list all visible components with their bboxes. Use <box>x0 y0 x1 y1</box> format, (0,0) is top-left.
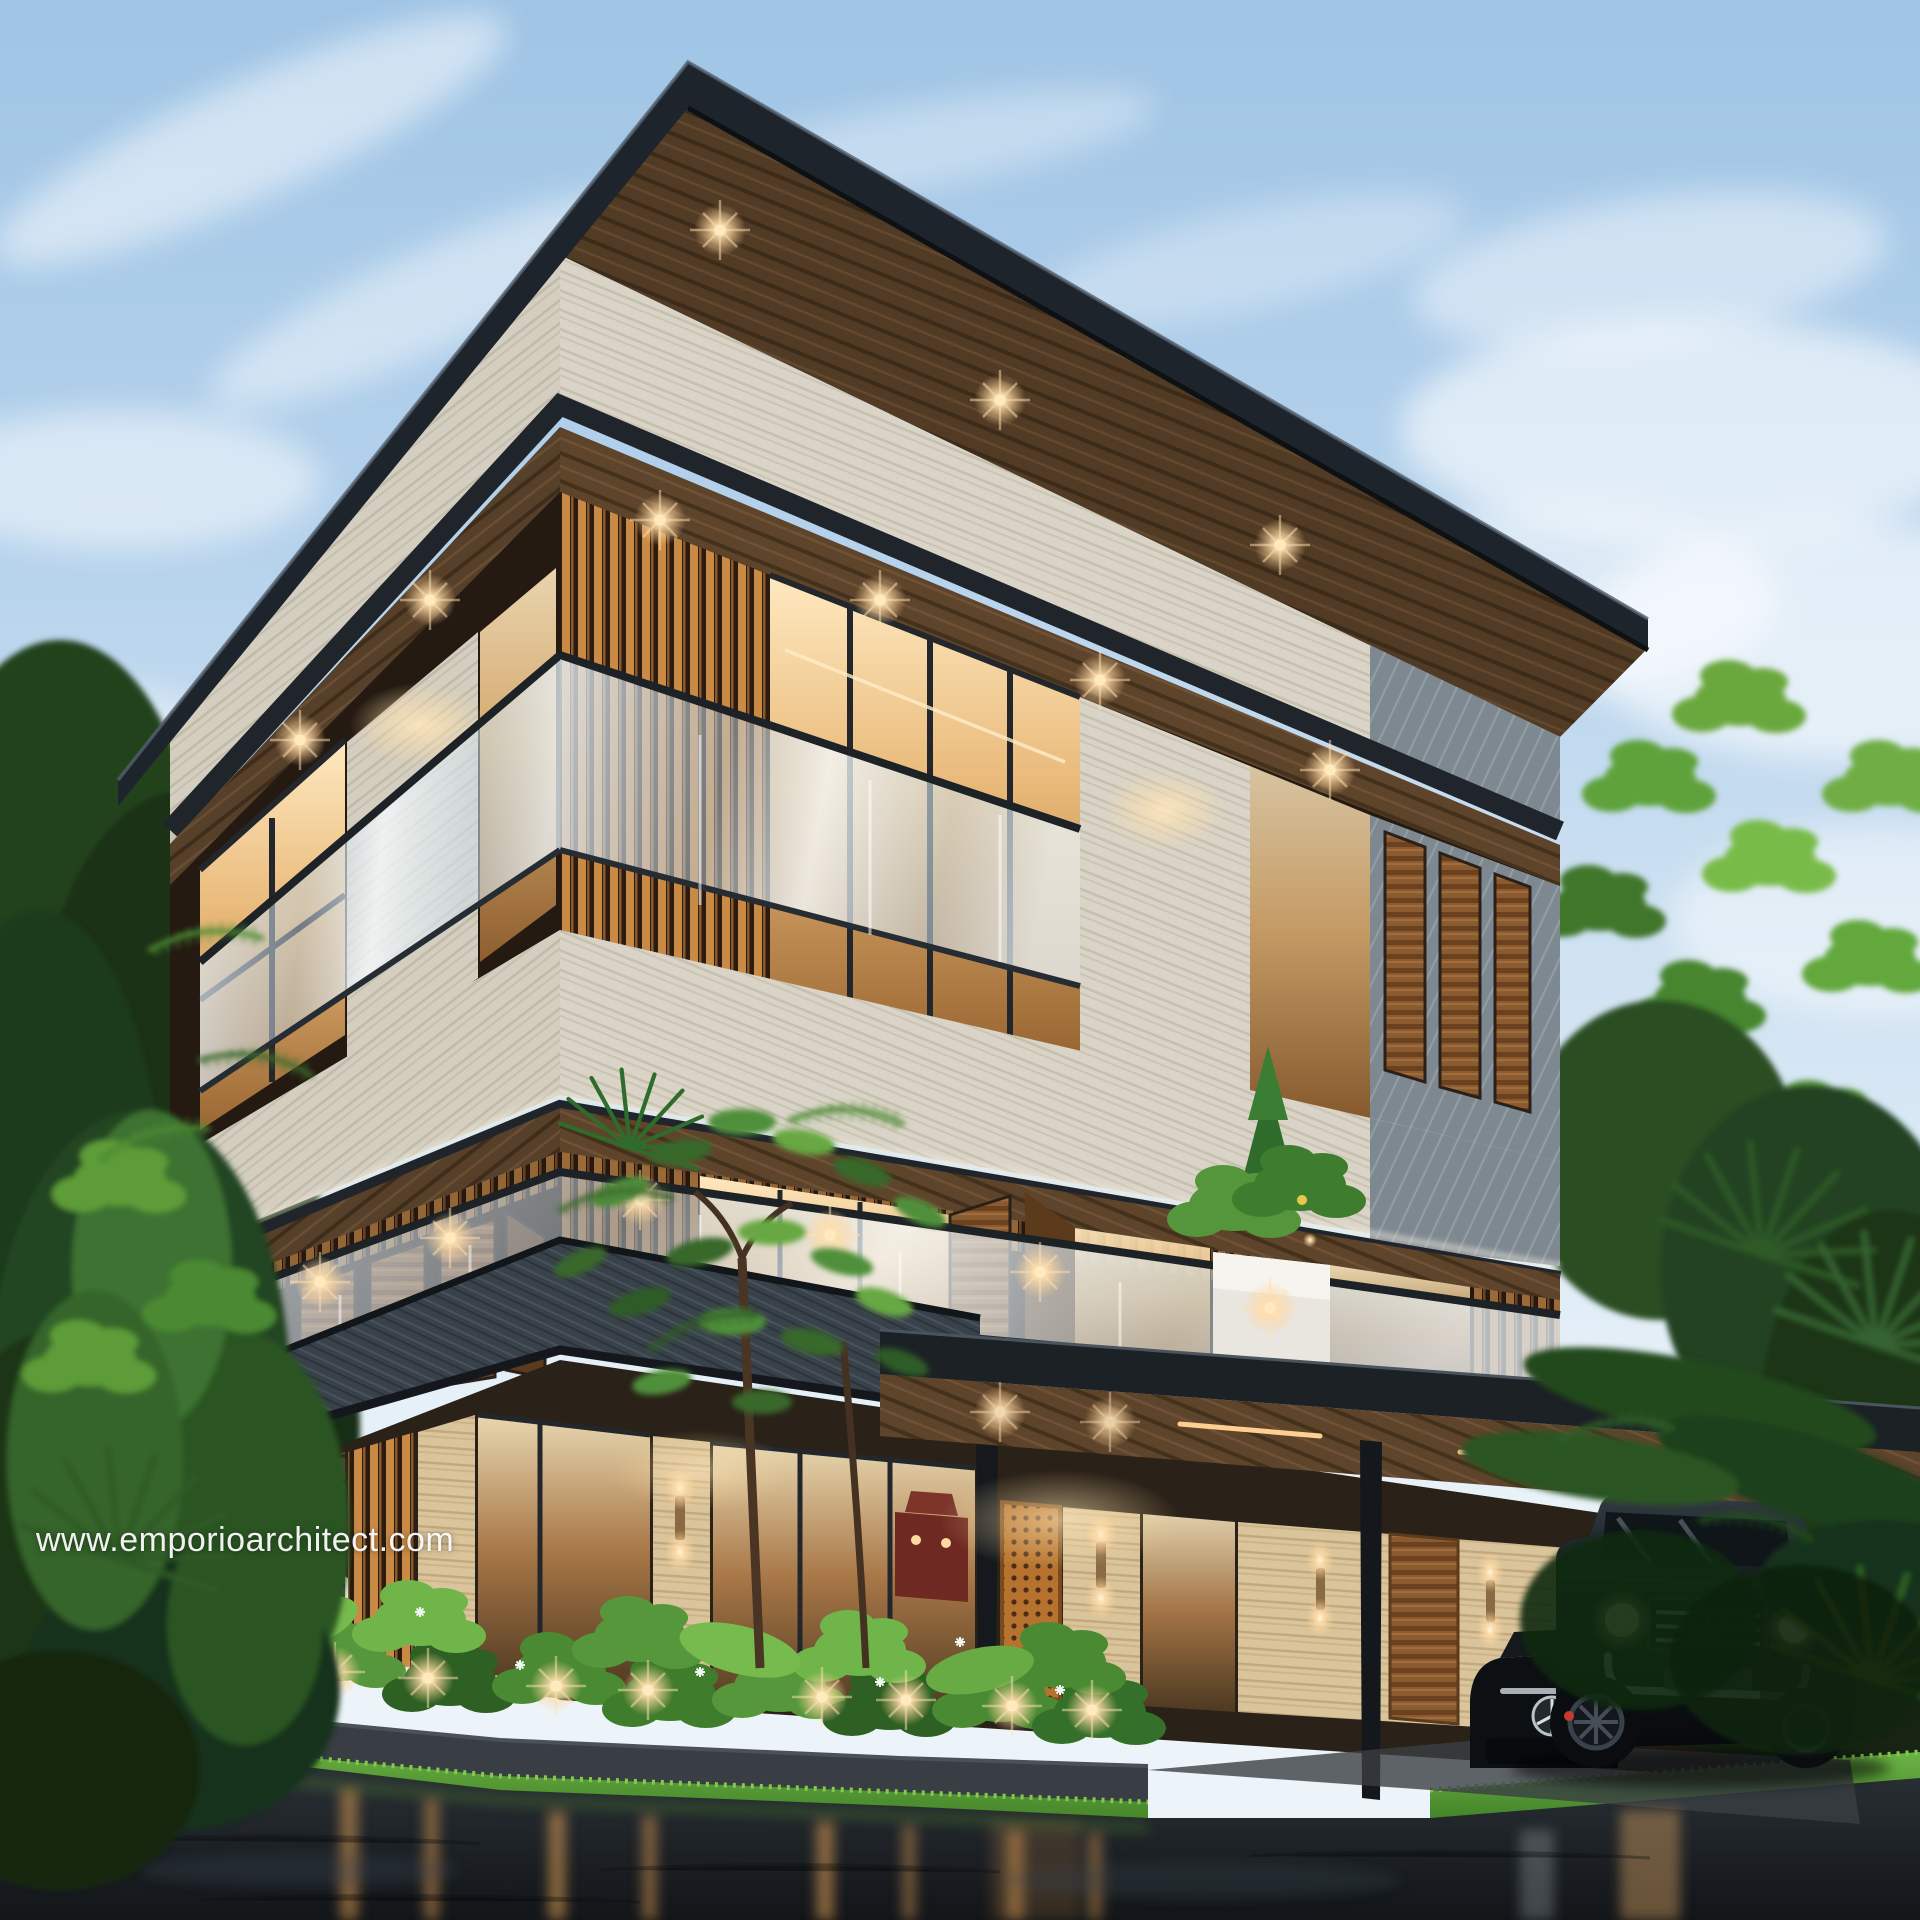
side-door-panel <box>1390 1534 1458 1724</box>
canopy-post-1 <box>1360 1440 1382 1800</box>
render-canvas: www.emporioarchitect.com <box>0 0 1920 1920</box>
villa-render <box>0 0 1920 1920</box>
watermark-text: www.emporioarchitect.com <box>36 1521 454 1560</box>
travertine-pier-right <box>1080 697 1250 1095</box>
